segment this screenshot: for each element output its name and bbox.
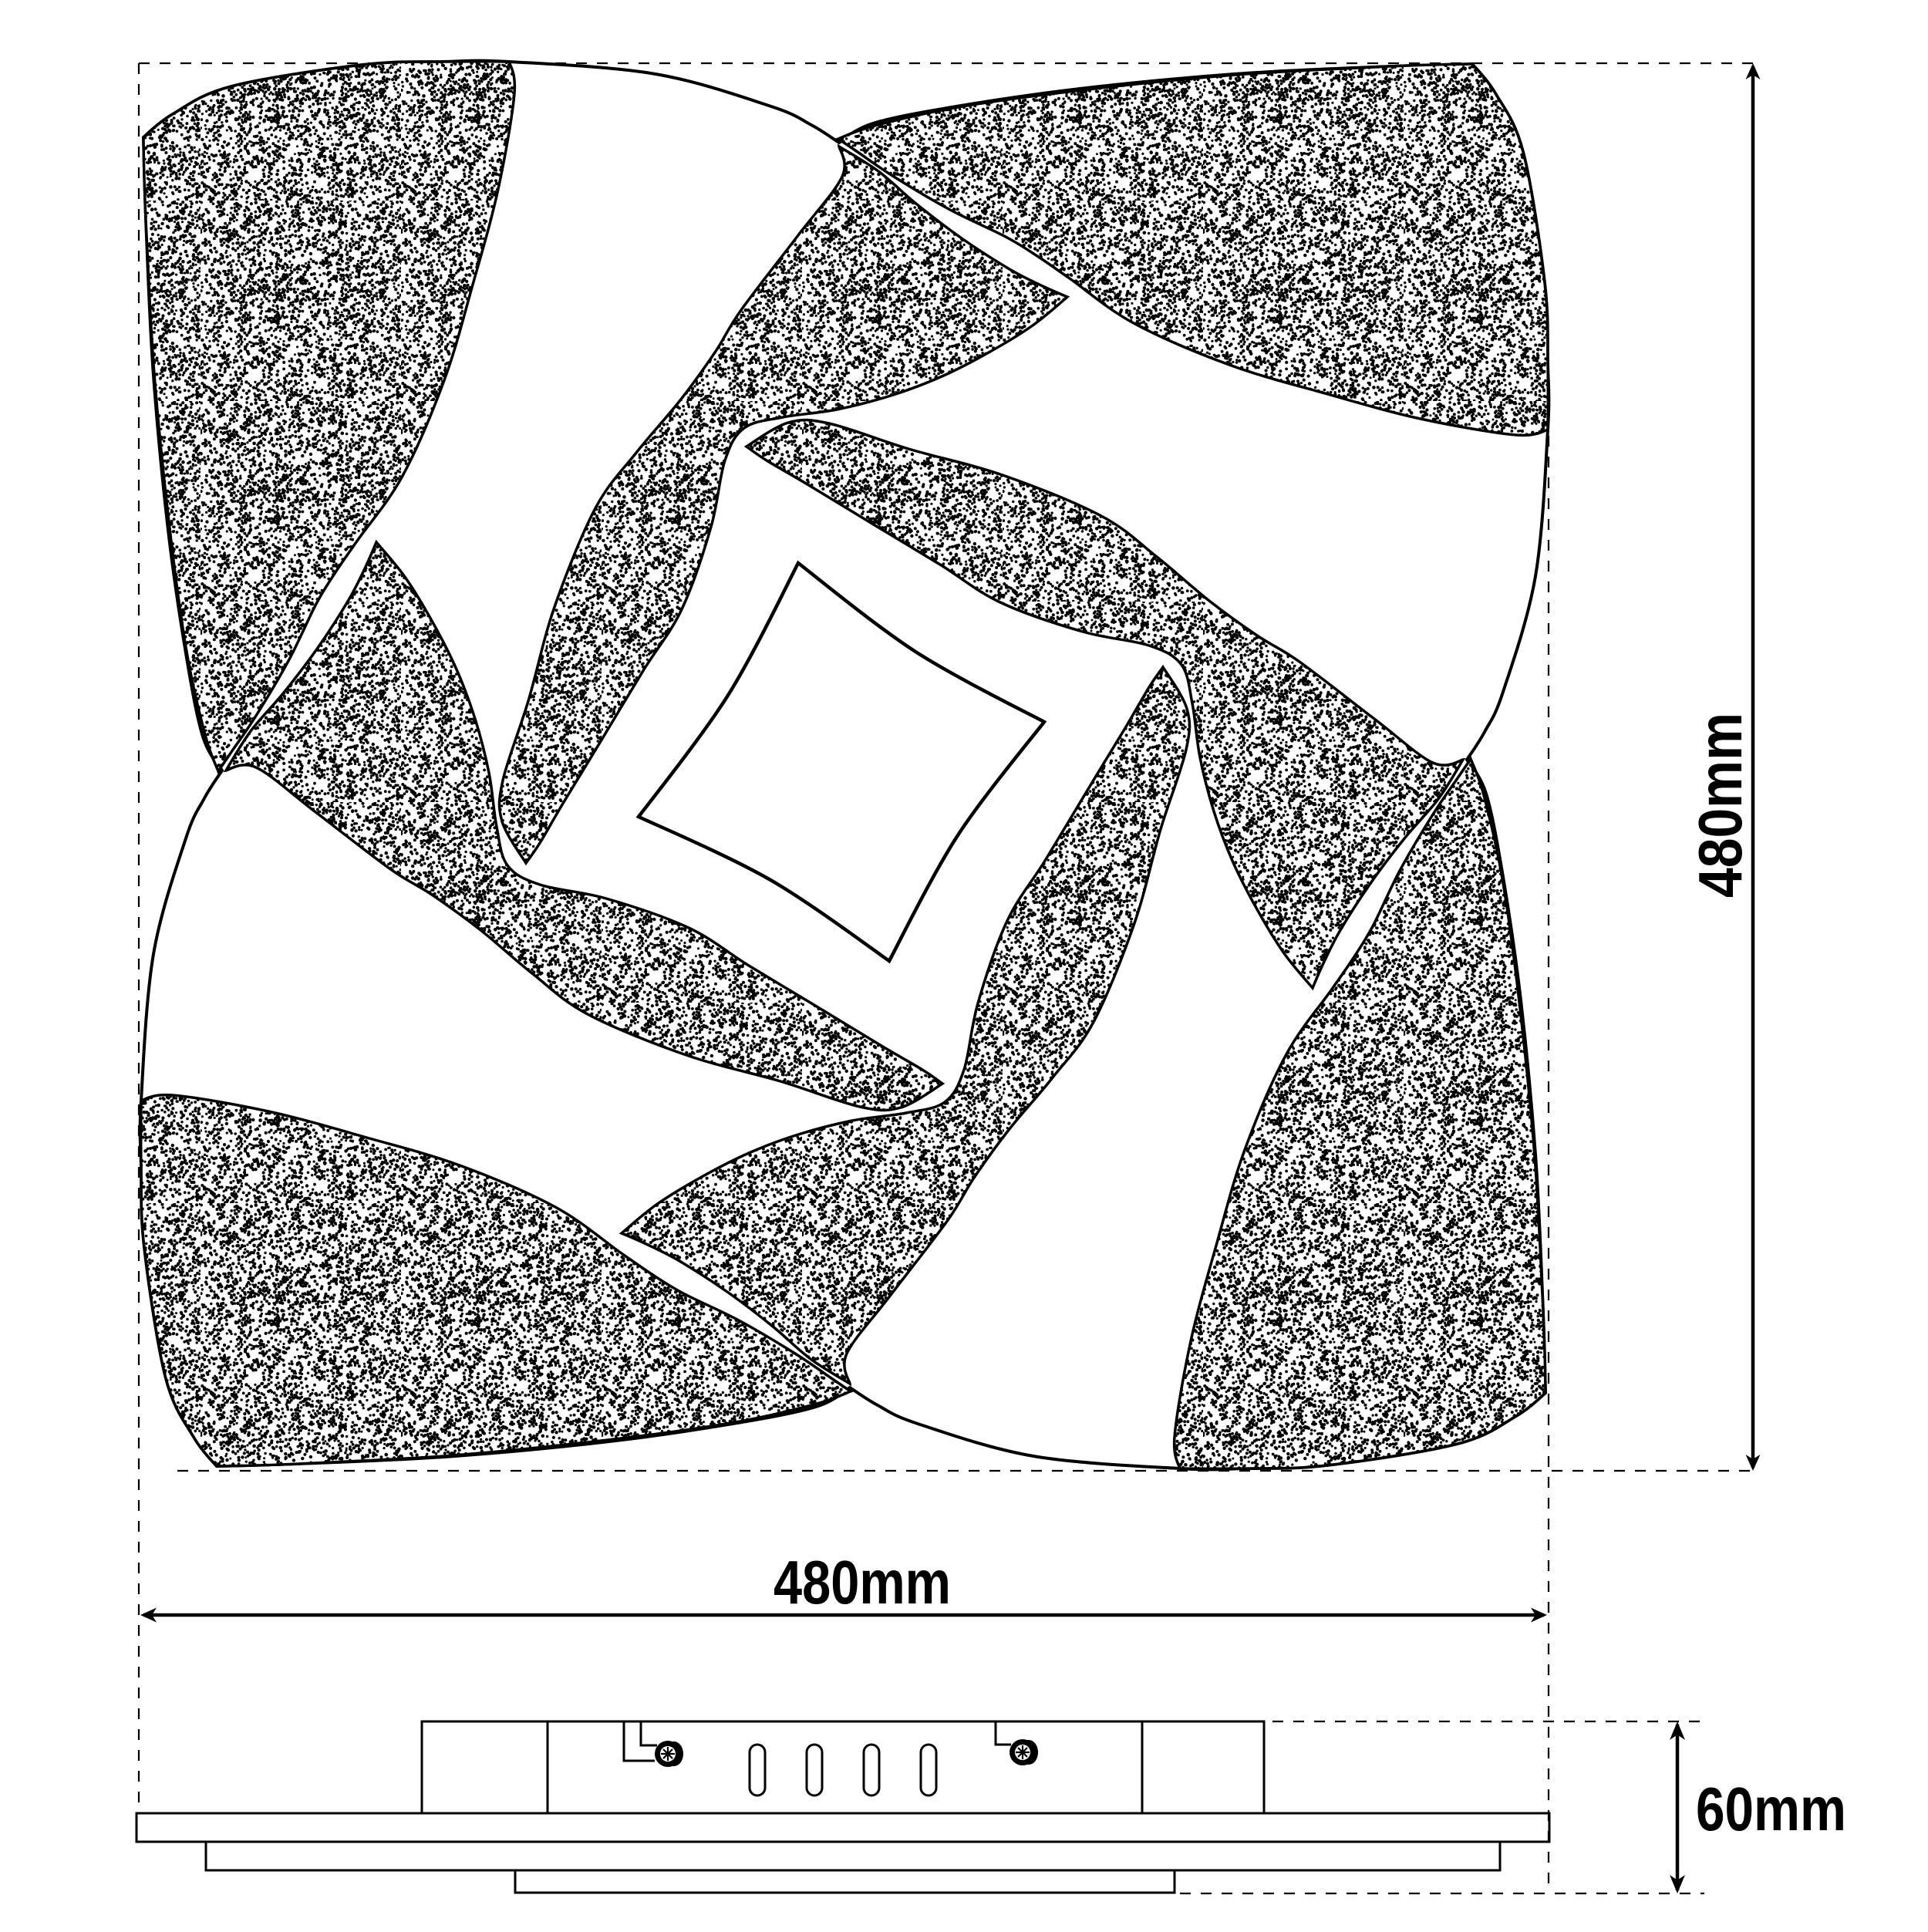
svg-text:480mm: 480mm: [774, 1548, 951, 1617]
svg-text:60mm: 60mm: [1696, 1775, 1846, 1843]
svg-text:480mm: 480mm: [1686, 713, 1754, 898]
